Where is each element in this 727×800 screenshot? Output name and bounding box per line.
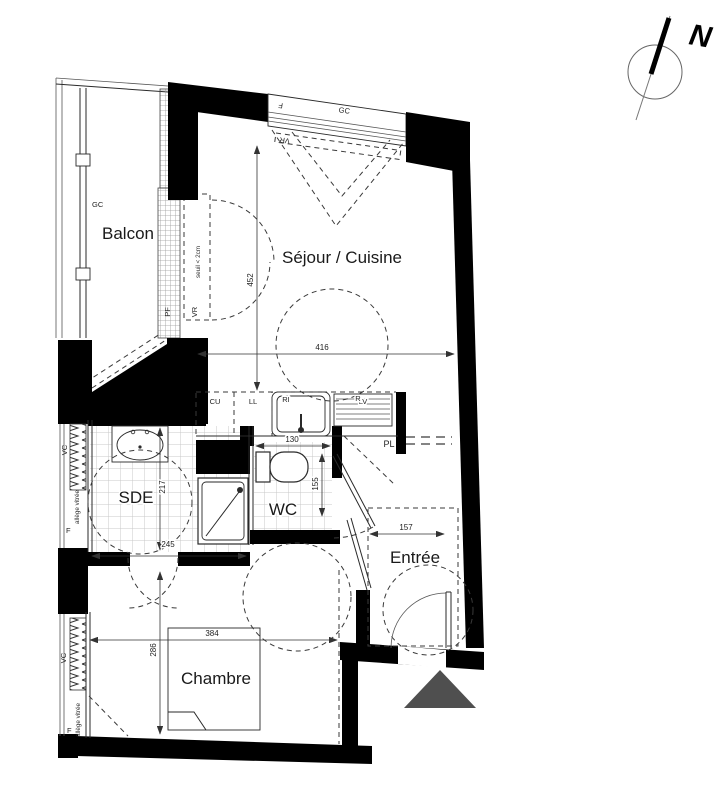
railing-bracket <box>76 154 90 166</box>
label-ri: RI <box>282 395 290 404</box>
door-swing <box>212 262 270 320</box>
turning-circle-sejour <box>276 289 388 401</box>
railing-bracket <box>76 268 90 280</box>
entree-zone-dashed <box>368 508 458 646</box>
dim-384: 384 <box>205 629 219 638</box>
label-gc-balcony: GC <box>92 200 104 209</box>
dimension-chambre-depth: 286 <box>149 572 160 734</box>
dim-217: 217 <box>158 480 167 494</box>
dim-245: 245 <box>161 540 175 549</box>
label-cu: CU <box>210 397 221 406</box>
dimension-entree-width: 157 <box>370 523 444 534</box>
floor-plan-page: 452 416 217 245 130 155 <box>0 0 727 800</box>
room-label-entree: Entrée <box>390 548 440 567</box>
label-allege-chambre: allège vitrée <box>75 703 82 737</box>
north-label: N <box>687 18 715 54</box>
label-f-chambre: F <box>67 726 72 735</box>
door-swing <box>128 558 178 608</box>
label-pl: PL <box>383 439 394 449</box>
entrance-arrow-icon <box>404 670 476 708</box>
door-swing <box>128 558 178 608</box>
room-label-sejour-cuisine: Séjour / Cuisine <box>282 248 402 267</box>
label-pf: PF <box>163 307 172 317</box>
dimension-sejour-width: 416 <box>198 343 454 354</box>
label-allege-sde: allège vitrée <box>74 490 81 524</box>
label-gc-window: GC <box>338 105 351 116</box>
dimension-sejour-depth: 452 <box>246 146 257 390</box>
wall-bottom <box>76 736 372 764</box>
sde-facade-window <box>60 420 92 552</box>
radiator-icon <box>70 618 86 690</box>
dim-286: 286 <box>149 643 158 657</box>
label-f-sde: F <box>66 526 71 535</box>
shower <box>198 478 248 544</box>
dim-452: 452 <box>246 273 255 287</box>
door-swing <box>212 200 274 262</box>
label-seuil: seuil < 2cm <box>195 246 202 278</box>
label-r: R <box>355 394 361 403</box>
room-label-wc: WC <box>269 500 297 519</box>
floor-plan: 452 416 217 245 130 155 <box>56 78 484 764</box>
label-vr-window: VR <box>278 135 290 145</box>
dim-155: 155 <box>311 477 320 491</box>
room-label-balcon: Balcon <box>102 224 154 243</box>
floor-plan-canvas: 452 416 217 245 130 155 <box>0 0 727 800</box>
dim-130: 130 <box>285 435 299 444</box>
north-arrow-icon: N <box>628 16 715 120</box>
room-label-sde: SDE <box>119 488 154 507</box>
wall-right <box>452 160 484 648</box>
wall <box>168 86 198 200</box>
dim-416: 416 <box>315 343 329 352</box>
chambre-facade-window <box>60 612 128 738</box>
wc-door-leaf <box>333 456 371 528</box>
sejour-window <box>268 94 406 159</box>
radiator-icon <box>70 424 86 490</box>
label-ll: LL <box>249 397 257 406</box>
faucet-icon <box>298 427 304 433</box>
entry-door-swing <box>391 593 446 648</box>
dim-157: 157 <box>399 523 413 532</box>
turning-circle-entree <box>383 565 473 655</box>
label-vr-pf: VR <box>190 306 199 317</box>
kitchen-sink <box>272 392 330 436</box>
toilet <box>256 452 308 482</box>
hall-door-leaf <box>347 520 367 590</box>
label-vc-chambre: VC <box>59 652 68 663</box>
label-vc-sde: VC <box>60 444 69 455</box>
window-swing <box>89 696 128 736</box>
shower-head-icon <box>237 487 243 493</box>
room-label-chambre: Chambre <box>181 669 251 688</box>
top-facade <box>168 82 470 200</box>
